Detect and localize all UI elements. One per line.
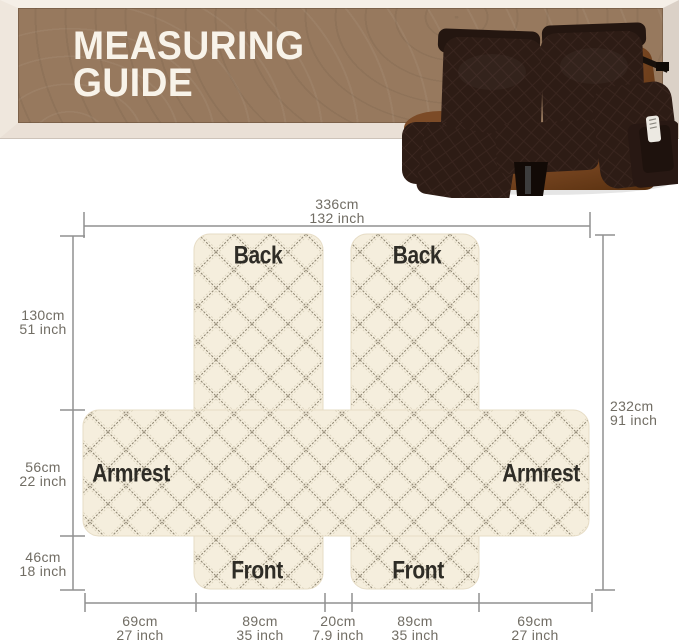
front-left-label: Front <box>231 557 283 586</box>
cover-layout-shape <box>83 234 589 589</box>
bottom-dimension-line <box>85 593 592 612</box>
left-armrest-dimension-label: 56cm 22 inch <box>19 461 66 488</box>
bottom-dimension-label-1: 69cm 27 inch <box>116 615 163 640</box>
left-dimension-line <box>60 236 85 590</box>
front-right-label: Front <box>392 557 444 586</box>
top-dimension-label: 336cm 132 inch <box>309 198 364 225</box>
bottom-dimension-label-2: 89cm 35 inch <box>236 615 283 640</box>
back-left-label: Back <box>234 242 283 271</box>
bottom-dimension-label-5: 69cm 27 inch <box>511 615 558 640</box>
left-back-dimension-label: 130cm 51 inch <box>19 309 66 336</box>
measurement-diagram <box>0 0 679 640</box>
armrest-left-label: Armrest <box>92 460 170 489</box>
measuring-guide-page: MEASURING GUIDE <box>0 0 679 640</box>
right-dimension-label: 232cm 91 inch <box>610 400 657 427</box>
left-front-dimension-label: 46cm 18 inch <box>19 551 66 578</box>
armrest-right-label: Armrest <box>502 460 580 489</box>
bottom-dimension-label-3: 20cm 7.9 inch <box>312 615 363 640</box>
back-right-label: Back <box>393 242 442 271</box>
bottom-dimension-label-4: 89cm 35 inch <box>391 615 438 640</box>
